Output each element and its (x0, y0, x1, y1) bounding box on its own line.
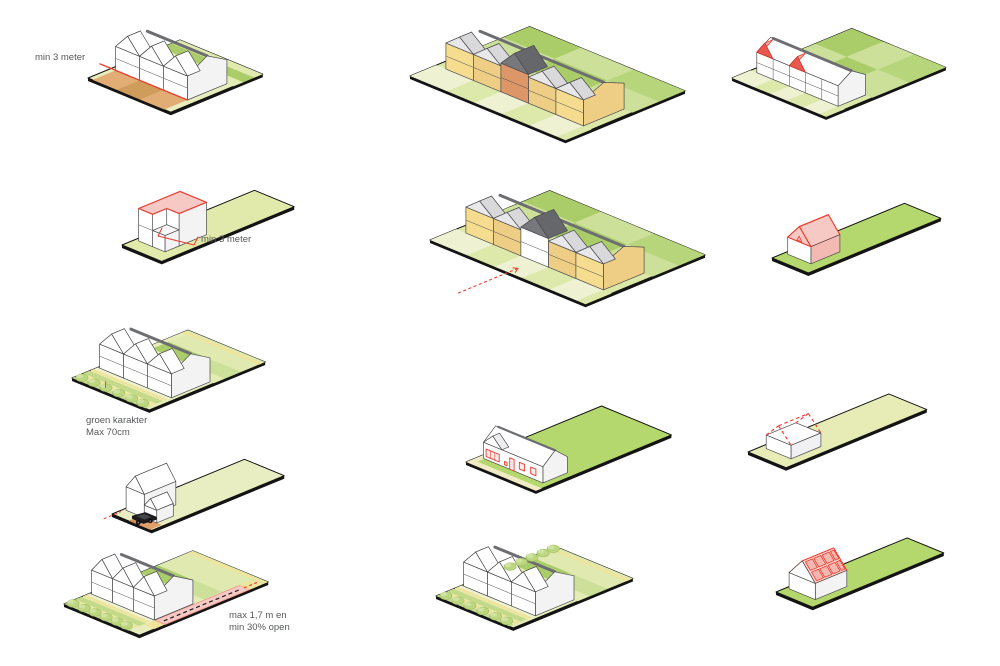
label-groen-karakter-line1: groen karakter (86, 415, 147, 427)
diagram-sheet: min 3 meter min 3 meter groen karakter M… (0, 0, 1000, 666)
diagram-rowhouse-block-highlight-unit (430, 191, 705, 308)
label-max-fence-line2: min 30% open (229, 622, 290, 634)
diagram-green-character-front-garden (72, 329, 265, 413)
diagram-roof-extension (772, 203, 941, 276)
label-min-3-meter-side: min 3 meter (201, 234, 251, 246)
label-groen-karakter-line2: Max 70cm (86, 427, 147, 439)
diagram-setback-front-min-3-meter (88, 31, 263, 115)
diagram-canvas (0, 0, 1000, 666)
diagram-rear-hedge (436, 545, 633, 631)
diagram-parking-driveway (104, 459, 285, 533)
diagram-setback-side-min-3-meter (122, 190, 294, 264)
diagram-solar-panels-roof (776, 538, 944, 610)
diagram-rowhouse-block-accent-unit (410, 27, 685, 144)
diagram-roof-volume-outline (748, 394, 927, 471)
diagram-facade-openings (466, 406, 671, 494)
diagram-roof-accents (732, 29, 946, 120)
label-max-fence: max 1,7 m en min 30% open (229, 610, 290, 634)
label-min-3-meter-front: min 3 meter (35, 52, 85, 64)
label-max-fence-line1: max 1,7 m en (229, 610, 290, 622)
label-groen-karakter: groen karakter Max 70cm (86, 415, 147, 439)
